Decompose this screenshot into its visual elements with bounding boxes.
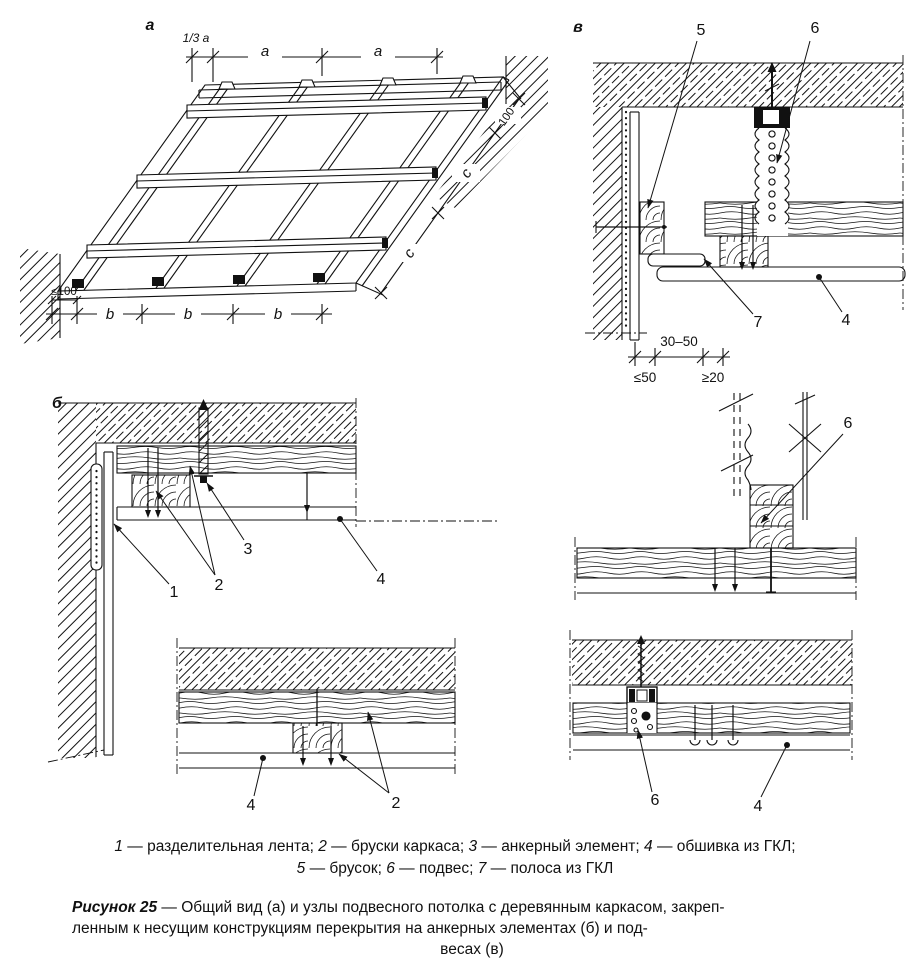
wood-board — [577, 548, 856, 578]
figure-legend: 1 — разделительная лента; 2 — бруски кар… — [0, 836, 910, 880]
callout-3: 3 — [244, 541, 253, 558]
perforated-strap-6 — [627, 703, 657, 733]
anchor-feet — [72, 273, 325, 288]
callouts: 6 4 — [638, 730, 787, 815]
dim-label-30-50: 30–50 — [660, 334, 698, 349]
dim-bottom-b: ≤100 b b b — [46, 286, 332, 324]
legend-line-2: 5 — брусок; 6 — подвес; 7 — полоса из ГК… — [0, 858, 910, 880]
dim-label-third-a: 1/3 а — [183, 31, 210, 45]
callout-2: 2 — [392, 795, 401, 812]
hanger-block — [750, 485, 793, 548]
dim-label-a2: а — [374, 43, 382, 60]
panel-v-bottom: 6 4 — [570, 630, 852, 815]
wood-board-2 — [117, 446, 356, 473]
caption-title: Рисунок 25 — [72, 899, 157, 916]
ceiling-slab-hatch — [572, 640, 852, 685]
frame-bearing-bars — [87, 97, 488, 258]
anchor-bracket — [627, 687, 657, 704]
figure-caption: Рисунок 25 — Общий вид (а) и узлы подвес… — [72, 897, 872, 960]
callout-2: 2 — [215, 577, 224, 594]
ceiling-slab-hatch — [593, 63, 903, 107]
caption-line-2: ленным к несущим конструкциям перекрытия… — [72, 918, 872, 939]
callout-4: 4 — [377, 571, 386, 588]
figure-canvas: а — [0, 0, 910, 975]
gkl-wall-strip — [104, 452, 113, 755]
panel-b-bottom: 4 2 — [177, 638, 455, 814]
panel-v-mid: 6 — [575, 392, 856, 600]
panel-v-top: в — [573, 19, 905, 385]
frame-clips — [219, 76, 476, 89]
panel-v-label: в — [573, 19, 583, 36]
callout-4: 4 — [842, 312, 851, 329]
frame-brusok-2 — [132, 475, 190, 507]
caption-dash: — — [161, 899, 177, 916]
gkl-sheet-4 — [657, 267, 905, 281]
gkl-sheet-4 — [117, 507, 356, 520]
wall-hatch — [48, 403, 104, 762]
wood-board — [705, 202, 903, 236]
gkl-sheet-4 — [179, 753, 455, 768]
dim-label-b1: b — [106, 306, 114, 323]
dim-label-a1: а — [261, 43, 269, 60]
ceiling-slab-hatch — [179, 648, 455, 690]
gkl-wall-strip — [630, 112, 639, 340]
dim-label-b2: b — [184, 306, 192, 323]
caption-line-3: весах (в) — [72, 939, 872, 960]
frame-brusok-2 — [293, 723, 342, 753]
dim-label-le50: ≤50 — [634, 370, 656, 385]
dim-label-le100: ≤100 — [51, 286, 77, 298]
callout-4: 4 — [754, 798, 763, 815]
callout-6: 6 — [844, 415, 853, 432]
brusok-5 — [640, 202, 664, 254]
dims-v: 30–50 ≤50 ≥20 — [628, 334, 730, 385]
dim-label-ge20: ≥20 — [702, 370, 724, 385]
dim-top-a: 1/3 а а а — [183, 31, 443, 82]
callout-6: 6 — [651, 792, 660, 809]
panel-a-label: а — [146, 17, 155, 34]
callout-7: 7 — [754, 314, 763, 331]
panel-a: а — [20, 17, 548, 344]
callout-5: 5 — [697, 22, 706, 39]
legend-line-1: 1 — разделительная лента; 2 — бруски кар… — [0, 836, 910, 858]
callout-1: 1 — [170, 584, 179, 601]
dim-label-b3: b — [274, 306, 282, 323]
wall-hatch — [585, 107, 647, 340]
callout-6: 6 — [811, 20, 820, 37]
caption-text-1: Общий вид (а) и узлы подвесного потолка … — [181, 899, 724, 916]
separation-tape — [91, 464, 102, 570]
figure-page: а — [0, 0, 910, 975]
gkl-strip-7 — [648, 254, 705, 266]
caption-line-1: Рисунок 25 — Общий вид (а) и узлы подвес… — [72, 897, 872, 918]
callout-4: 4 — [247, 797, 256, 814]
